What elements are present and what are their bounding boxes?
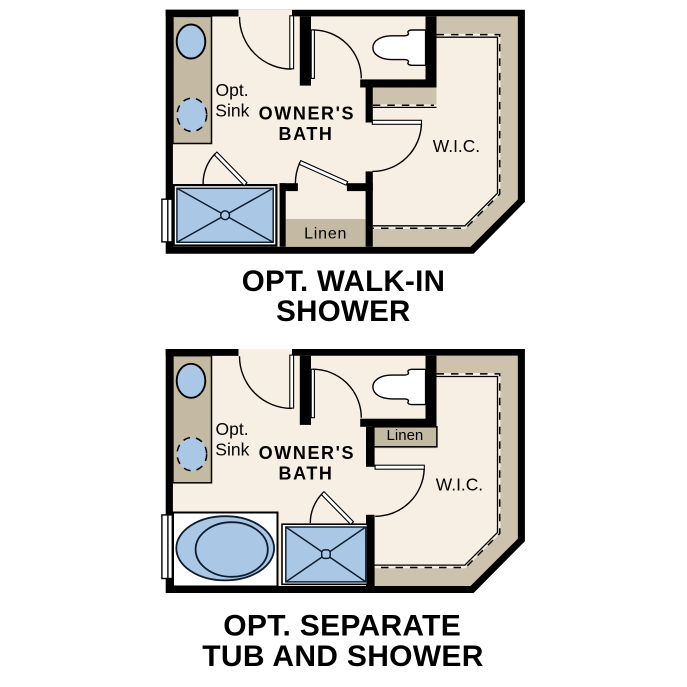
- svg-text:Opt.: Opt.: [216, 419, 249, 439]
- svg-text:OPT. SEPARATE: OPT. SEPARATE: [223, 609, 461, 642]
- svg-text:Linen: Linen: [304, 225, 347, 242]
- svg-text:Sink: Sink: [215, 440, 249, 460]
- svg-text:OWNER'S: OWNER'S: [259, 104, 355, 124]
- svg-text:OPT. WALK-IN: OPT. WALK-IN: [242, 265, 446, 298]
- svg-text:Sink: Sink: [215, 100, 249, 120]
- svg-text:BATH: BATH: [278, 464, 333, 484]
- svg-text:OWNER'S: OWNER'S: [259, 443, 355, 463]
- svg-text:Linen: Linen: [387, 427, 424, 444]
- svg-text:W.I.C.: W.I.C.: [433, 136, 480, 156]
- svg-text:Opt.: Opt.: [216, 80, 249, 100]
- svg-text:BATH: BATH: [278, 124, 333, 144]
- svg-text:W.I.C.: W.I.C.: [436, 475, 483, 495]
- svg-text:TUB AND SHOWER: TUB AND SHOWER: [202, 640, 483, 673]
- svg-text:SHOWER: SHOWER: [276, 295, 411, 328]
